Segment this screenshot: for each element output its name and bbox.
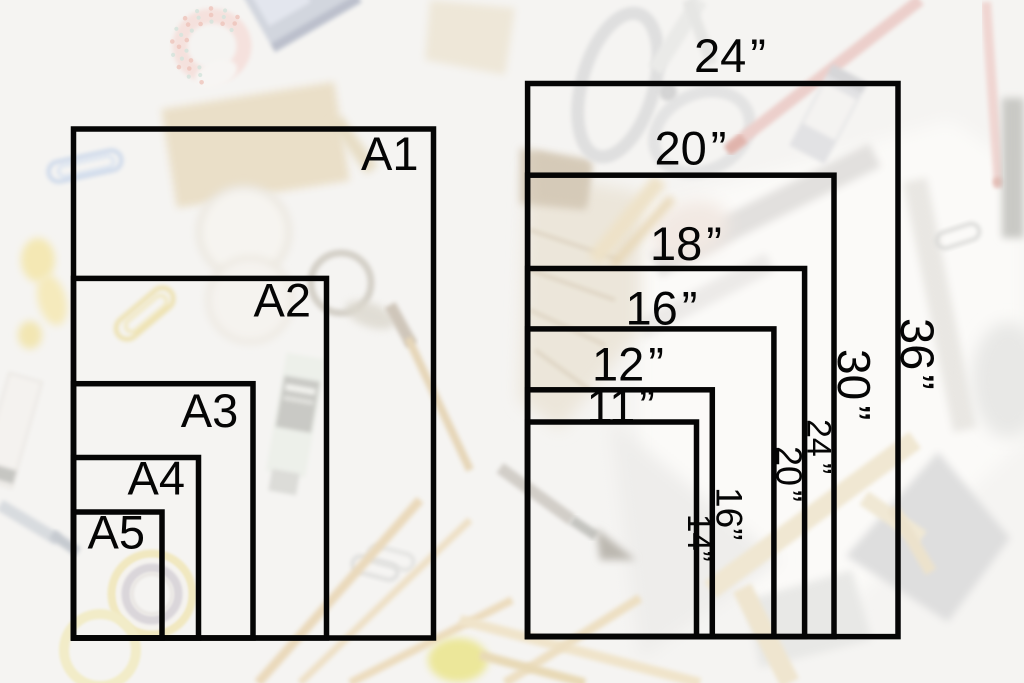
svg-text:16”: 16” xyxy=(626,282,698,335)
svg-text:A2: A2 xyxy=(254,273,312,326)
svg-text:A4: A4 xyxy=(128,451,186,504)
svg-text:20”: 20” xyxy=(655,122,727,175)
svg-text:30”: 30” xyxy=(828,349,880,421)
svg-text:20”: 20” xyxy=(769,446,810,502)
svg-text:24”: 24” xyxy=(694,29,766,82)
svg-text:36”: 36” xyxy=(891,318,944,390)
svg-text:A3: A3 xyxy=(181,384,239,437)
svg-text:18”: 18” xyxy=(650,217,722,270)
svg-text:11”: 11” xyxy=(587,380,655,433)
svg-text:A1: A1 xyxy=(361,127,419,180)
svg-text:14”: 14” xyxy=(681,514,718,562)
svg-text:A5: A5 xyxy=(88,505,146,558)
